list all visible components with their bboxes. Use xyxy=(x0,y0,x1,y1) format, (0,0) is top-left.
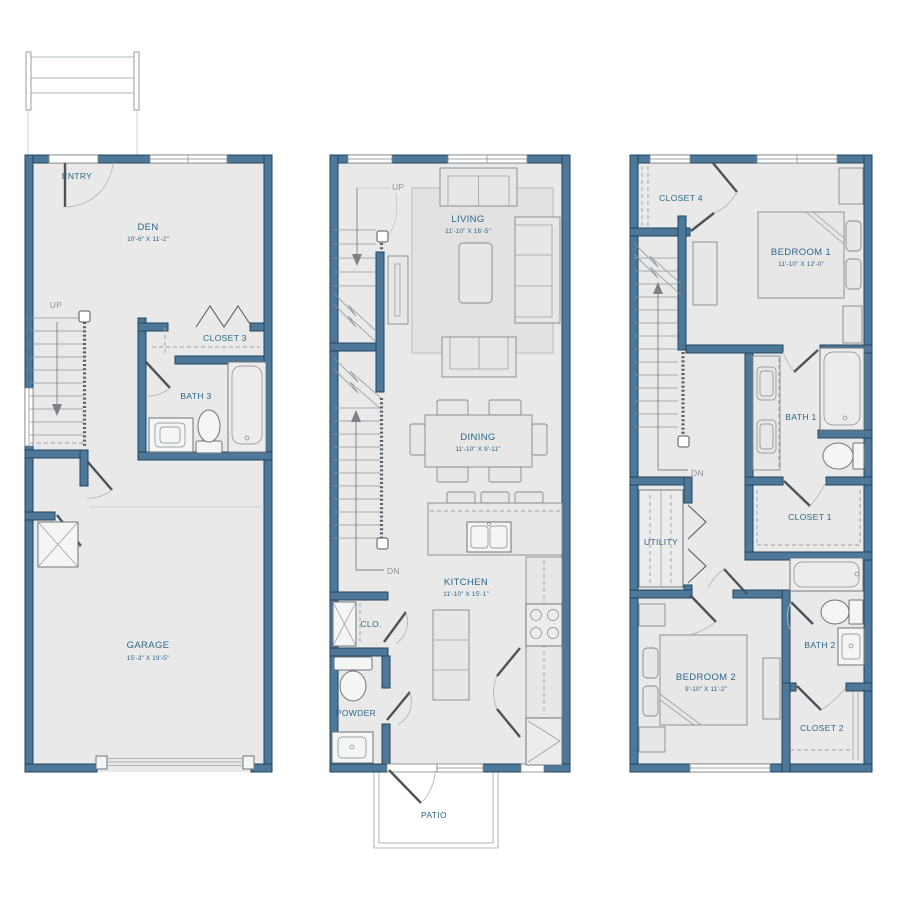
pillow xyxy=(846,259,861,289)
refrigerator-icon xyxy=(526,718,562,765)
floor-plan-2: UP DN LIVING 11'-10" X 16'-5" DINING 11'… xyxy=(330,155,570,848)
dining-dims: 11'-10" X 9'-11" xyxy=(455,446,501,453)
up-label: UP xyxy=(50,300,63,310)
bath2-label: BATH 2 xyxy=(804,640,835,650)
patio-door xyxy=(389,770,435,803)
bedroom2-dims: 9'-10" X 11'-2" xyxy=(685,686,728,693)
kitchen-island xyxy=(433,610,469,700)
bench xyxy=(763,658,780,719)
closet1-label: CLOSET 1 xyxy=(788,512,832,522)
dining-chair xyxy=(410,424,425,455)
garage-label: GARAGE xyxy=(127,640,170,651)
dresser xyxy=(839,168,863,204)
dining-chair xyxy=(489,467,521,482)
bath3-label: BATH 3 xyxy=(180,391,211,401)
kitchen-label: KITCHEN xyxy=(444,577,488,588)
living-furniture xyxy=(388,168,560,377)
bathtub-icon xyxy=(820,348,864,430)
entry-label: ENTRY xyxy=(62,171,92,181)
floor-plan-drawing: ENTRY DEN 10'-6" X 11'-2" UP CLOSET 3 BA… xyxy=(0,0,900,900)
dining-chair xyxy=(437,400,468,415)
bath2-sink-icon xyxy=(838,628,864,665)
bathtub-icon xyxy=(790,558,863,591)
living-dims: 11'-10" X 16'-5" xyxy=(445,228,491,235)
loveseat-bottom xyxy=(442,337,516,377)
utility-label: UTILITY xyxy=(644,537,678,547)
patio-door-leaf xyxy=(389,770,421,803)
bedroom1-dims: 11'-10" X 12'-0" xyxy=(778,261,824,268)
pillow xyxy=(846,221,861,251)
den-dims: 10'-6" X 11'-2" xyxy=(127,236,170,243)
loveseat-top xyxy=(440,168,517,206)
dining-chair xyxy=(532,424,547,455)
newel-post xyxy=(79,311,90,322)
bathtub-icon xyxy=(228,362,266,452)
sofa-right xyxy=(515,217,560,323)
powder-sink-icon xyxy=(332,732,373,763)
patio-door-opening xyxy=(387,764,437,772)
nightstand xyxy=(843,306,862,343)
coffee-table xyxy=(459,243,492,303)
floor-plan-3: CLOSET 4 BEDROOM 1 11'-10" X 12'-0" DN B… xyxy=(630,155,872,772)
front-porch xyxy=(26,52,139,155)
bar-stool xyxy=(447,492,475,503)
closet2-label: CLOSET 2 xyxy=(800,723,844,733)
clo-label: CLO. xyxy=(360,619,381,629)
nightstand xyxy=(639,727,665,752)
tv-console xyxy=(388,256,408,324)
porch-post xyxy=(26,52,31,110)
closet4-label: CLOSET 4 xyxy=(659,193,703,203)
closet3-label: CLOSET 3 xyxy=(203,333,247,343)
kitchen-dims: 11'-10" X 15'-1" xyxy=(443,591,489,598)
dn-label: DN xyxy=(691,468,704,478)
toilet-icon xyxy=(196,410,222,453)
water-heater-icon xyxy=(38,522,78,567)
kitchen-sink-icon xyxy=(467,522,511,552)
bedroom2-label: BEDROOM 2 xyxy=(676,672,736,683)
newel-post xyxy=(377,538,388,549)
patio-label: PATIO xyxy=(421,810,447,820)
up-label: UP xyxy=(392,182,405,192)
nightstand xyxy=(639,604,665,626)
newel-post xyxy=(377,231,388,242)
dining-chair xyxy=(489,400,521,415)
living-label: LIVING xyxy=(451,214,484,225)
entry-door-opening xyxy=(49,155,98,163)
dining-label: DINING xyxy=(460,432,495,443)
floor-plan-1: ENTRY DEN 10'-6" X 11'-2" UP CLOSET 3 BA… xyxy=(25,52,272,772)
dn-label: DN xyxy=(387,566,400,576)
den-label: DEN xyxy=(137,222,158,233)
floor-plan-sheet: ENTRY DEN 10'-6" X 11'-2" UP CLOSET 3 BA… xyxy=(0,0,900,900)
toilet-icon xyxy=(823,443,864,469)
newel-post xyxy=(678,436,689,447)
bath1-label: BATH 1 xyxy=(785,412,816,422)
porch-post xyxy=(134,52,139,110)
range-icon xyxy=(526,604,562,646)
floor1-area xyxy=(25,155,272,772)
bar-stool xyxy=(515,492,543,503)
dining-chair xyxy=(437,467,468,482)
bedroom1-label: BEDROOM 1 xyxy=(771,247,831,258)
pillow xyxy=(643,648,658,678)
garage-dims: 15'-3" X 19'-5" xyxy=(127,655,170,662)
powder-label: POWDER xyxy=(336,708,376,718)
toilet-icon xyxy=(821,600,863,624)
bar-stool xyxy=(481,492,509,503)
dresser xyxy=(693,242,717,305)
pillow xyxy=(643,686,658,716)
